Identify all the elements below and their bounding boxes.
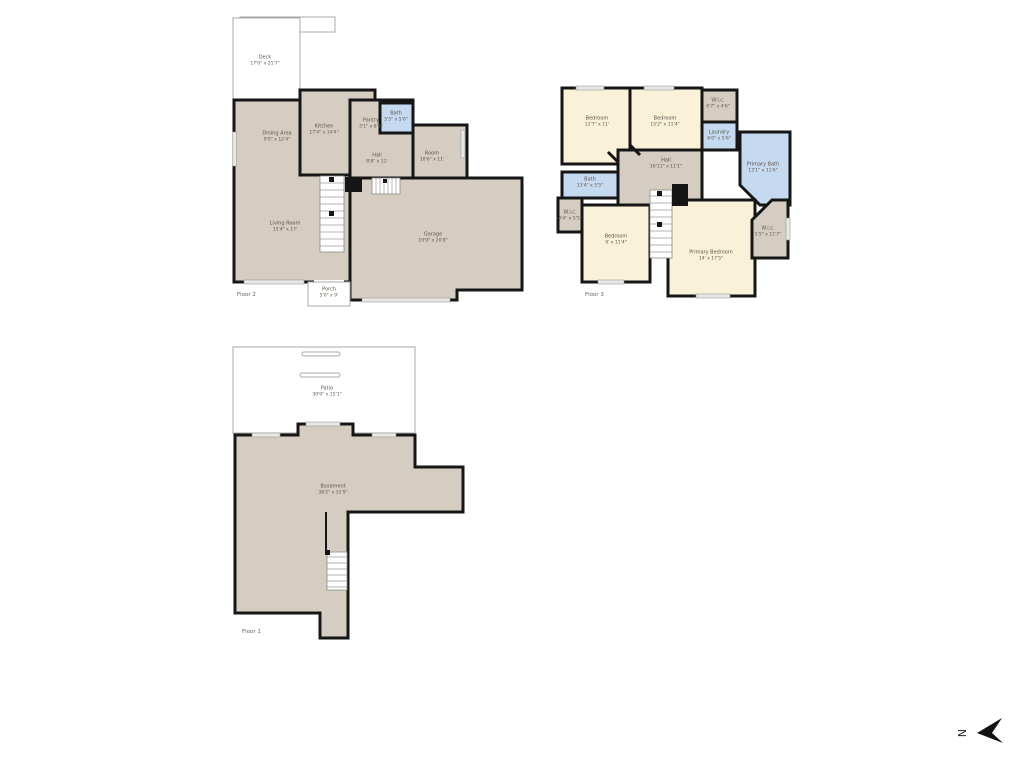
window <box>252 433 280 437</box>
window <box>644 86 674 90</box>
window <box>306 422 340 426</box>
north-arrow-icon: N <box>946 706 1016 756</box>
compass-n-label: N <box>955 729 968 737</box>
room-nook <box>413 125 467 178</box>
floor-2-plan: Deck 17'0" x 21'7" Dining Area 9'0" x 12… <box>232 14 532 314</box>
window <box>233 132 237 166</box>
window <box>598 280 624 284</box>
window <box>576 86 604 90</box>
room-primary-bedroom <box>668 200 755 296</box>
stairs-f1 <box>325 550 347 590</box>
room-bedroom-n <box>630 88 702 150</box>
stairs-f2 <box>320 176 344 252</box>
window <box>696 294 730 298</box>
floor-1-caption: Floor 1 <box>242 629 261 635</box>
patio-outline <box>233 347 415 433</box>
floor-2-walls <box>232 14 532 314</box>
window <box>244 280 304 284</box>
garage-entry-steps <box>372 178 400 194</box>
room-bedroom-sw <box>582 205 650 282</box>
compass: N <box>946 706 1016 756</box>
floor-1-walls <box>232 345 477 645</box>
room-wic-n <box>702 90 737 122</box>
floor-3-plan: Bedroom 11'7" x 11' Bedroom 15'2" x 11'4… <box>556 84 796 314</box>
floor-1-plan: Patio 30'9" x 15'1" Basement 38'2" x 31'… <box>232 345 477 645</box>
room-primary-bath <box>740 132 790 205</box>
room-wic-w <box>558 198 582 232</box>
room-wic-e <box>752 200 788 258</box>
room-laundry <box>702 122 737 150</box>
window <box>461 130 465 158</box>
window <box>786 218 790 240</box>
room-basement <box>235 424 463 638</box>
floor-3-walls <box>556 84 796 314</box>
floor-2-caption: Floor 2 <box>237 292 256 298</box>
garage-door <box>362 298 450 302</box>
stair-core-block <box>672 184 688 206</box>
floor-3-caption: Floor 3 <box>585 292 604 298</box>
room-bath-w <box>562 172 618 198</box>
floorplan-sheet: Deck 17'0" x 21'7" Dining Area 9'0" x 12… <box>0 0 1024 768</box>
room-bath-f2 <box>380 103 413 133</box>
stairs-f3 <box>650 190 672 258</box>
window <box>372 433 396 437</box>
chimney-block <box>345 177 362 192</box>
porch-outline <box>308 282 350 306</box>
room-garage <box>350 178 522 300</box>
deck-outline <box>233 17 335 100</box>
